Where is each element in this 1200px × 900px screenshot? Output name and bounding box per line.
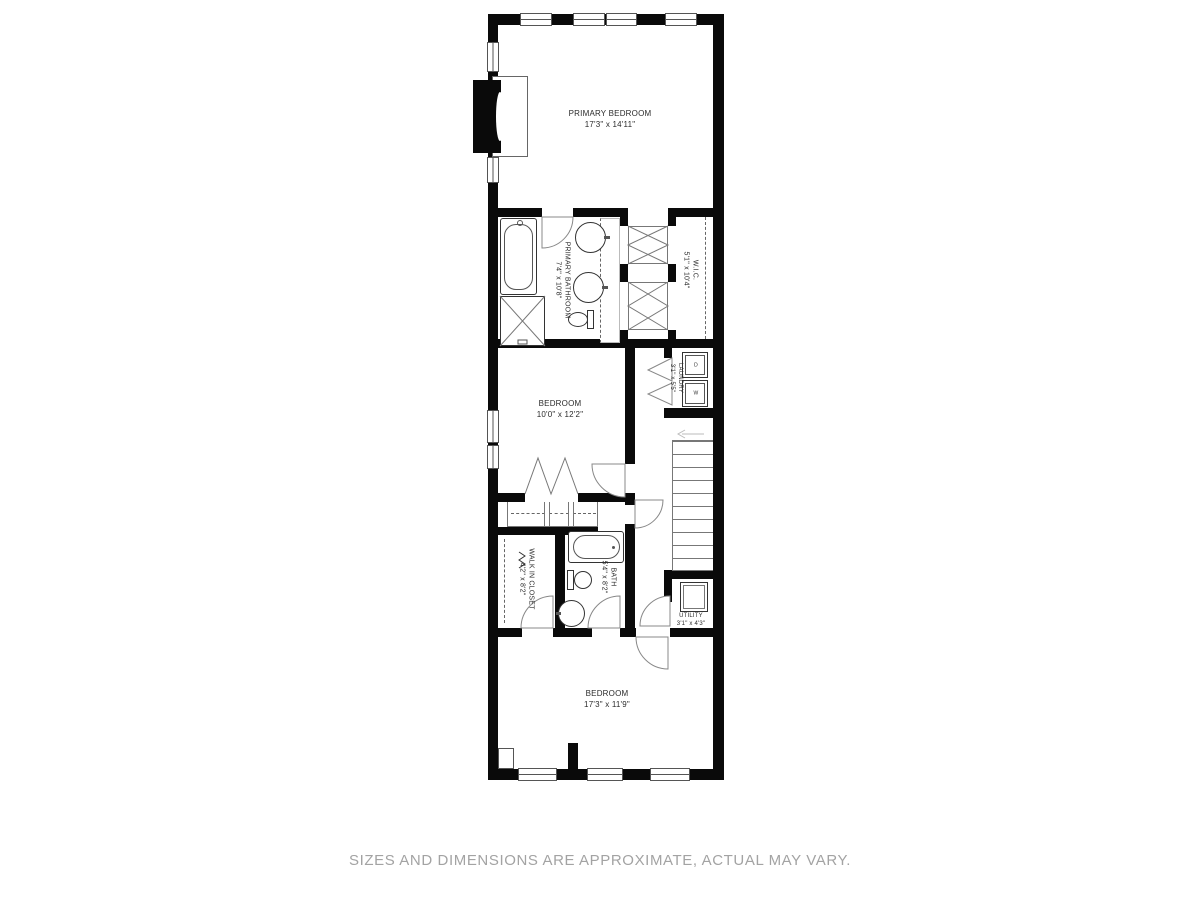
bifold-closet-doors bbox=[525, 458, 578, 494]
bathtub-icon bbox=[500, 218, 537, 295]
sink-icon bbox=[573, 272, 604, 303]
room-name: BEDROOM bbox=[537, 399, 583, 410]
room-name: BEDROOM bbox=[584, 689, 630, 700]
closet-bifold-doors bbox=[628, 226, 668, 264]
sink-icon bbox=[558, 600, 585, 627]
bathtub-icon bbox=[568, 531, 624, 563]
toilet-tank bbox=[587, 310, 594, 329]
wall bbox=[670, 628, 713, 637]
room-label-bedroom-bottom: BEDROOM 17'3" x 11'9" bbox=[584, 689, 630, 711]
disclaimer-text: SIZES AND DIMENSIONS ARE APPROXIMATE, AC… bbox=[0, 852, 1200, 869]
wall bbox=[498, 493, 525, 502]
door-arc bbox=[636, 637, 668, 669]
room-label-wic: W.I.C. 5'1" x 10'4" bbox=[681, 252, 700, 289]
window bbox=[487, 410, 499, 443]
wall bbox=[668, 264, 676, 282]
window bbox=[518, 768, 557, 781]
room-dims: 3'1" x 5'5" bbox=[668, 363, 676, 393]
room-dims: 7'4" x 10'8" bbox=[553, 242, 562, 319]
room-label-walk-in-closet: WALK IN CLOSET 4'2" x 8'2" bbox=[517, 548, 536, 609]
fireplace-firebox bbox=[496, 92, 504, 141]
room-label-primary-bathroom: PRIMARY BATHROOM 7'4" x 10'8" bbox=[553, 242, 572, 319]
window bbox=[606, 13, 637, 26]
closet-bifold-doors bbox=[628, 282, 668, 330]
wall bbox=[620, 628, 636, 637]
window bbox=[520, 13, 552, 26]
floor-plan: D W bbox=[480, 12, 730, 782]
wall bbox=[668, 208, 676, 226]
sink-tap bbox=[556, 612, 561, 615]
dryer-label: D bbox=[694, 363, 698, 370]
room-dims: 3'1" x 4'3" bbox=[677, 620, 705, 628]
dryer-icon: D bbox=[682, 352, 708, 378]
room-name: W.I.C. bbox=[690, 252, 699, 289]
room-label-primary-bedroom: PRIMARY BEDROOM 17'3" x 14'11" bbox=[569, 109, 652, 131]
window bbox=[487, 445, 499, 469]
room-label-utility: UTILITY 3'1" x 4'3" bbox=[677, 612, 705, 628]
corner-nook bbox=[498, 748, 514, 769]
washer-icon: W bbox=[682, 380, 708, 407]
room-label-bath: BATH 5'4" x 8'2" bbox=[599, 561, 618, 594]
window bbox=[665, 13, 697, 26]
wall bbox=[625, 493, 635, 505]
door-arc bbox=[635, 500, 663, 528]
closet-shelf-line bbox=[705, 217, 706, 339]
wall bbox=[620, 264, 628, 282]
wall-right bbox=[713, 14, 724, 780]
wall bbox=[664, 348, 672, 358]
wall bbox=[498, 208, 542, 217]
door-arc bbox=[640, 596, 670, 626]
room-name: PRIMARY BEDROOM bbox=[569, 109, 652, 120]
water-heater-icon bbox=[680, 582, 708, 612]
room-name: BATH bbox=[608, 561, 617, 594]
closet-rod-line bbox=[504, 539, 505, 623]
wall bbox=[625, 348, 635, 464]
sink-tap bbox=[604, 236, 610, 239]
window bbox=[487, 42, 499, 72]
window bbox=[587, 768, 623, 781]
room-dims: 17'3" x 11'9" bbox=[584, 700, 630, 711]
sink-icon bbox=[575, 222, 606, 253]
room-name: UTILITY bbox=[677, 612, 705, 620]
window bbox=[573, 13, 605, 26]
wall bbox=[620, 208, 628, 226]
window bbox=[487, 157, 499, 183]
shower-icon bbox=[500, 296, 545, 346]
room-dims: 10'0" x 12'2" bbox=[537, 410, 583, 421]
room-dims: 5'4" x 8'2" bbox=[599, 561, 608, 594]
wall bbox=[498, 628, 522, 637]
door-arc bbox=[588, 596, 620, 628]
room-label-laundry: LAUNDRY 3'1" x 5'5" bbox=[668, 363, 684, 393]
room-name: LAUNDRY bbox=[676, 363, 684, 393]
room-dims: 4'2" x 8'2" bbox=[517, 548, 526, 609]
washer-label: W bbox=[694, 391, 699, 398]
wall bbox=[664, 408, 713, 418]
room-name: PRIMARY BATHROOM bbox=[562, 242, 571, 319]
room-name: WALK IN CLOSET bbox=[526, 548, 535, 609]
toilet-tank bbox=[567, 570, 574, 590]
toilet-icon bbox=[574, 571, 592, 589]
window bbox=[650, 768, 690, 781]
stairs-direction-arrow bbox=[676, 429, 704, 439]
closet-shelves bbox=[507, 502, 598, 527]
wall bbox=[625, 524, 635, 628]
wall bbox=[573, 208, 620, 217]
door-arc bbox=[592, 464, 625, 497]
wall bbox=[553, 628, 592, 637]
stairs bbox=[672, 440, 713, 571]
room-label-bedroom-mid: BEDROOM 10'0" x 12'2" bbox=[537, 399, 583, 421]
wall bbox=[676, 208, 713, 217]
sink-tap bbox=[602, 286, 608, 289]
room-dims: 5'1" x 10'4" bbox=[681, 252, 690, 289]
wall-stub bbox=[568, 743, 578, 770]
room-dims: 17'3" x 14'11" bbox=[569, 120, 652, 131]
